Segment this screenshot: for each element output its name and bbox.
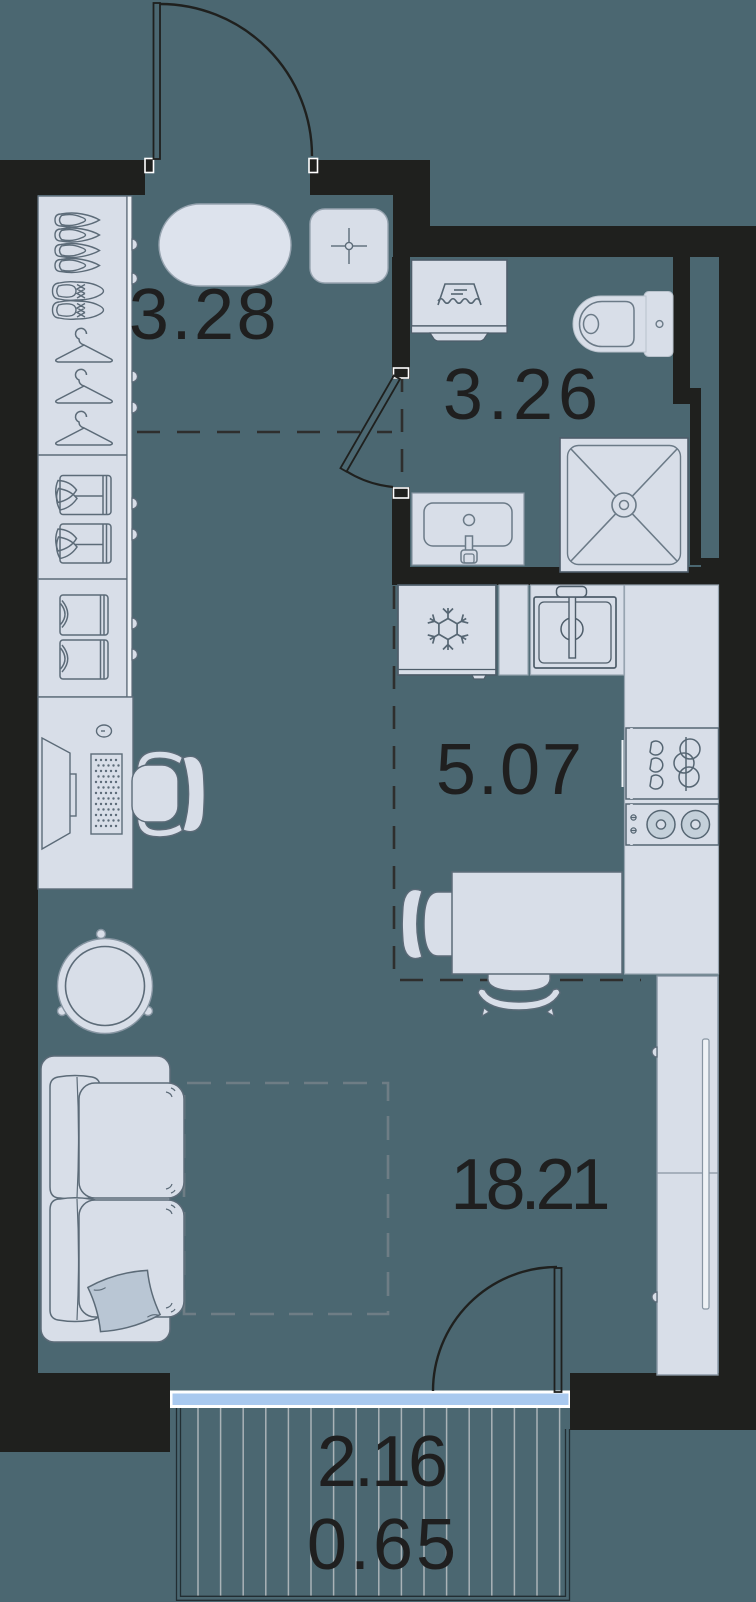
svg-text:3.28: 3.28 <box>129 275 279 355</box>
svg-text:3.26: 3.26 <box>443 355 603 435</box>
svg-text:0.65: 0.65 <box>307 1505 459 1585</box>
svg-text:5.07: 5.07 <box>436 730 584 810</box>
svg-text:2.16: 2.16 <box>317 1422 445 1502</box>
svg-text:18.21: 18.21 <box>450 1145 607 1225</box>
